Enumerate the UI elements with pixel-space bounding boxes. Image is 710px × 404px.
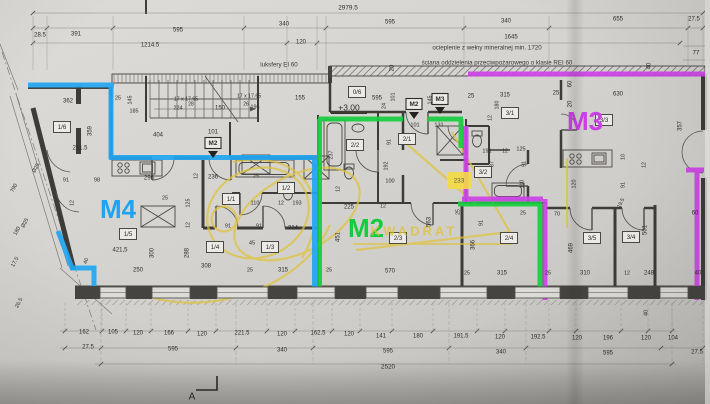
dimension-label: 25	[326, 267, 332, 273]
dimension-label: 2979.5	[338, 5, 358, 12]
dimension-label: 110	[519, 180, 525, 189]
dimension-label: 125	[516, 146, 525, 152]
dimension-label: 12	[380, 203, 386, 209]
dimension-label: 655	[613, 17, 624, 23]
dimension-label: 77	[693, 51, 700, 57]
dimension-label: 120	[641, 336, 652, 342]
dimension-label: 196	[251, 104, 260, 110]
dimension-label: 25	[464, 270, 470, 276]
dimension-lines	[31, 11, 706, 366]
room-label: 2/2	[351, 142, 360, 149]
dimension-label: 25	[162, 195, 168, 201]
dimension-label: 40	[647, 62, 653, 69]
dimension-label: 595	[168, 347, 179, 353]
dimension-label: 91	[256, 223, 262, 229]
dimension-label: 24	[381, 103, 387, 109]
dimension-label: 25	[520, 210, 526, 216]
dimension-label: 12	[502, 148, 508, 154]
dimension-label: 1214.5	[141, 43, 160, 49]
dimension-label: 91	[225, 223, 231, 229]
dimension-label: 87	[489, 161, 495, 167]
dimension-label: 359	[88, 125, 94, 136]
exit-arrow-icon	[409, 112, 419, 119]
dimension-label: 391	[71, 32, 82, 38]
dimension-label: 162	[79, 330, 90, 336]
dimension-label: 150	[215, 106, 226, 112]
room-label: 3/4	[627, 234, 636, 241]
wall-pier	[75, 286, 100, 299]
dimension-label: 120	[296, 40, 307, 46]
dimension-label: 248	[644, 271, 655, 277]
dimension-label: 98	[94, 177, 100, 183]
exit-marker-label: M3	[436, 96, 445, 103]
dimension-label: 250	[133, 268, 144, 274]
wall-pier	[688, 286, 705, 299]
dimension-label: 120	[495, 335, 506, 341]
wall-pier	[190, 286, 217, 299]
fixtures	[112, 120, 612, 227]
dimension-label: 70	[554, 211, 560, 217]
dimension-label: 1645	[504, 35, 518, 41]
annotation-note: luksfery EI 60	[260, 62, 298, 69]
dimension-label: 27.5	[82, 345, 94, 351]
dimension-label: 221.5	[234, 331, 250, 337]
dimension-label: 131	[434, 122, 443, 128]
room-label: 3/1	[506, 110, 515, 117]
dimension-label: 26.5	[14, 297, 24, 309]
dimension-label: 340	[501, 19, 512, 25]
room-label: 1/2	[282, 185, 291, 192]
apartment-label-m4: M4	[100, 194, 137, 224]
wall-pier	[398, 286, 440, 299]
dimension-label: 12	[641, 162, 647, 168]
dimension-label: 421,5	[112, 248, 128, 254]
dimension-label: 91	[478, 220, 484, 226]
dimension-label: 790	[10, 183, 20, 194]
dimension-label: 12	[185, 222, 191, 228]
dimension-label: 27.5	[688, 17, 700, 23]
dimension-label: 155	[295, 96, 306, 102]
dimension-label: 25	[455, 209, 461, 215]
dimension-label: 357	[678, 120, 684, 131]
dimension-label: 595	[603, 351, 614, 357]
dimension-label: 100	[385, 178, 394, 184]
dimension-label: 12	[624, 270, 630, 276]
dimension-label: 105	[108, 330, 119, 336]
dimension-label: 595	[173, 28, 184, 34]
dimension-label: 261.5	[72, 146, 88, 152]
dimension-label: 12	[69, 200, 75, 206]
room-label: 2/4	[505, 235, 514, 242]
dimension-label: 25	[253, 173, 259, 179]
room-label: 1/3	[266, 244, 275, 251]
room-label: 2/1	[403, 136, 412, 143]
dimension-label: 40	[643, 310, 649, 316]
dimension-label: 60	[692, 211, 699, 217]
dimension-label: Ø25	[20, 217, 30, 229]
dimension-label: 104	[668, 336, 679, 342]
dimension-label: 236	[208, 175, 219, 181]
dimension-label: 141	[376, 334, 387, 340]
dimension-label: 145	[127, 96, 133, 105]
dimension-label: 296	[144, 176, 155, 182]
wall-pier	[126, 286, 152, 299]
dimension-label: 25	[553, 91, 560, 97]
dimension-label: 404	[153, 133, 164, 139]
dimension-label: 17.5	[10, 256, 20, 268]
dimension-label: 237	[328, 151, 334, 160]
dimension-label: 308	[201, 264, 212, 270]
dimension-label: 315	[497, 271, 508, 277]
annotation-note: ściana oddzielenia przeciwpożarowego o k…	[422, 60, 573, 67]
room-label: 3/2	[479, 169, 488, 176]
dimension-label: 120	[277, 332, 288, 338]
wall-pier	[628, 286, 660, 299]
room-label: 1/6	[58, 124, 67, 131]
dimension-label: 366	[471, 239, 477, 250]
dimension-label: 120	[133, 331, 144, 337]
dimension-label: 196	[603, 336, 614, 342]
wall-pier	[487, 286, 515, 299]
dimension-label: 19.5	[616, 197, 626, 209]
dimension-label: 12	[193, 173, 199, 179]
kitchen-counter	[112, 160, 162, 176]
dimension-label: 595	[372, 96, 383, 102]
dimension-label: 185	[130, 108, 139, 114]
dimension-label: 25	[545, 270, 551, 276]
dimension-label: 120	[344, 332, 355, 338]
dimension-label: 101	[410, 122, 419, 128]
dimension-label: 192	[383, 162, 389, 171]
washer-box	[141, 206, 175, 227]
dimension-label: 91	[386, 139, 392, 145]
bathtub	[324, 120, 345, 170]
dimension-label: 91	[521, 161, 527, 167]
room-label: 1/5	[124, 231, 133, 238]
dimension-label: 180	[413, 334, 424, 340]
dimension-label: 27.5	[691, 350, 703, 356]
dimension-label: 162.5	[310, 331, 326, 337]
room-label: 3/5	[588, 235, 597, 242]
floorplan-photo: 2979.528.539159534059534065527.51214.512…	[0, 0, 710, 404]
dimension-label: 26	[243, 101, 249, 107]
dimension-label: 17 x 17.65	[237, 93, 261, 99]
exit-marker-label: M2	[209, 140, 218, 147]
dimension-label: 101	[208, 130, 219, 136]
dimension-label: 180	[494, 101, 500, 110]
dimension-label: 40	[82, 257, 90, 265]
dimension-label: 28.5	[34, 33, 46, 39]
dimension-label: 12	[278, 200, 284, 206]
dimension-label: 340	[279, 22, 290, 28]
dimension-label: 45	[249, 240, 255, 246]
dimension-label: 595	[385, 20, 396, 26]
dimension-label: 25	[247, 267, 253, 273]
dimension-label: 101	[390, 93, 396, 102]
dimension-label: 10	[620, 154, 626, 160]
dimension-label: 570	[385, 269, 396, 275]
windows	[75, 286, 705, 299]
dimension-label: 191.5	[453, 334, 469, 340]
dimension-label: 17 x 17.65	[174, 96, 198, 102]
room-label: 1/4	[211, 244, 220, 251]
dimension-label: 225	[344, 205, 355, 211]
dimension-label: 191	[482, 148, 491, 154]
dimension-label: 12	[335, 186, 341, 192]
dimension-label: 25	[468, 94, 475, 100]
dimension-label: 166	[164, 331, 175, 337]
dimension-label: 340	[496, 350, 507, 356]
watermark-text: KWADRAT	[371, 223, 457, 238]
floorplan-drawing: 2979.528.539159534059534065527.51214.512…	[0, 0, 710, 404]
room-label: 1/1	[227, 196, 236, 203]
dimension-label: 315	[278, 268, 289, 274]
wall-pier	[268, 286, 297, 299]
toilet	[472, 131, 482, 147]
highlight-233-value: 233	[454, 178, 465, 185]
dimension-label: 20	[390, 64, 396, 71]
dimension-label: 110	[251, 200, 260, 206]
dimension-label: 630	[613, 92, 624, 98]
dimension-label: 340	[277, 348, 288, 354]
dimension-label: 91	[63, 177, 69, 183]
dimension-label: 300	[150, 247, 156, 258]
sink	[352, 124, 364, 132]
dimension-label: 192.5	[530, 335, 546, 341]
dimension-label: 28	[188, 101, 194, 107]
dimension-label: 40	[695, 271, 702, 277]
dimension-label: 362	[63, 99, 74, 105]
dimension-label: 501	[643, 224, 649, 235]
annotation-note: ocieplenie z wełny mineralnej min. 1720	[432, 45, 542, 52]
dimension-label: 193	[292, 200, 301, 206]
room-label: 0/6	[353, 89, 362, 96]
dimension-label: 125	[185, 199, 191, 208]
dimension-label: 315	[500, 93, 511, 99]
dimension-label: 25	[115, 95, 121, 101]
dimension-label: 451	[336, 231, 342, 242]
dimension-label: 120	[197, 332, 208, 338]
dimension-label: 595	[383, 349, 394, 355]
level-mark: +3.00	[338, 102, 360, 112]
dimension-label: 12	[487, 115, 493, 121]
exit-marker-label: M2	[410, 101, 419, 108]
wall-pier	[335, 286, 366, 299]
dimension-label: 214	[288, 226, 299, 232]
dimension-label: 91	[620, 182, 626, 188]
dimension-label: 288	[185, 247, 191, 258]
dimension-label: 224	[174, 105, 183, 111]
